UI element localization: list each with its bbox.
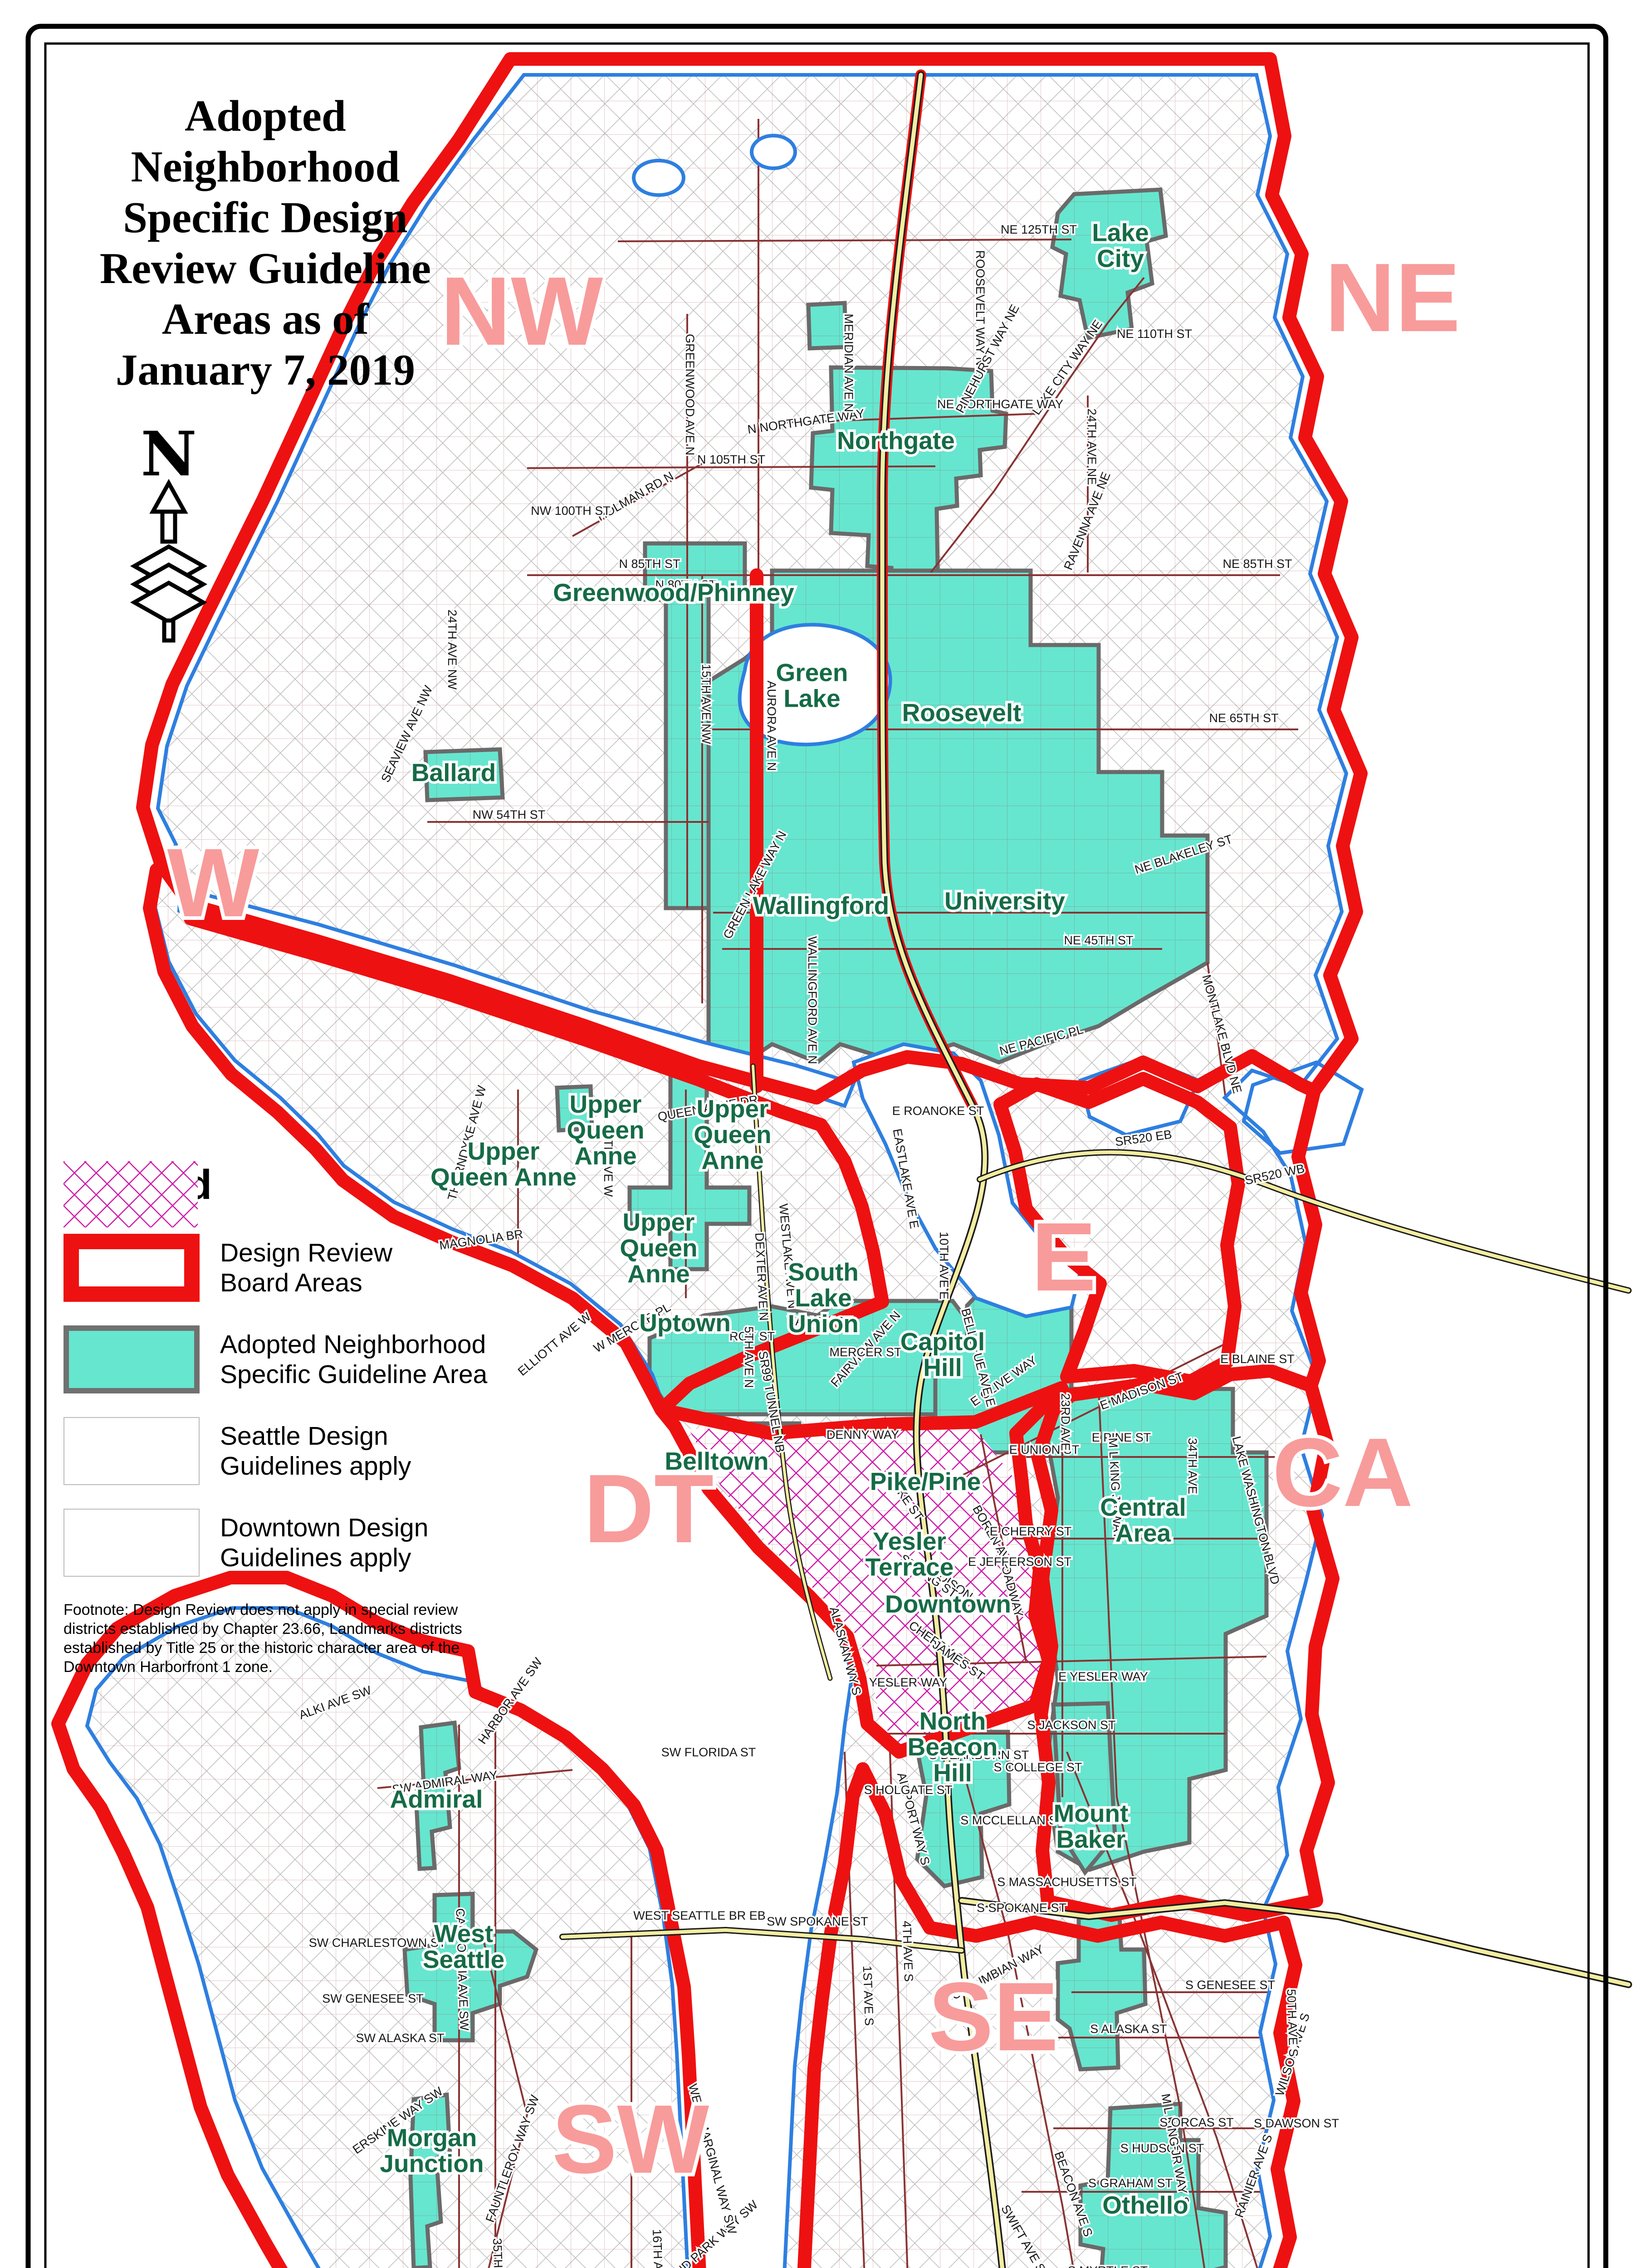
street-label: NW 54TH ST xyxy=(473,808,546,821)
street-label: NE 85TH ST xyxy=(1222,557,1292,571)
neighborhood-label: Admiral xyxy=(390,1785,483,1813)
neighborhood-label: MorganJunction xyxy=(380,2123,484,2177)
street-label: S ALASKA ST xyxy=(1090,2022,1167,2036)
legend: Legend Design Review Board Areas Adopted… xyxy=(64,1161,499,1677)
street-label: 4TH AVE S xyxy=(900,1921,916,1982)
legend-label: Seattle Design xyxy=(220,1421,411,1451)
street-label: E YESLER WAY xyxy=(1058,1670,1148,1683)
street-label: 16TH AVE SW xyxy=(650,2229,666,2268)
street-label: S MYRTLE ST xyxy=(1068,2264,1148,2268)
neighborhood-label: SouthLakeUnion xyxy=(788,1258,859,1338)
street-label: E ROANOKE ST xyxy=(892,1104,984,1118)
title-line: Review Guideline xyxy=(68,243,463,294)
street-label: E BLAINE ST xyxy=(1220,1352,1295,1366)
street-label: E JEFFERSON ST xyxy=(968,1555,1071,1569)
street-label: N 85TH ST xyxy=(619,557,680,571)
street-label: 50TH AVE S xyxy=(1284,1989,1300,2057)
neighborhood-label: Downtown xyxy=(885,1590,1011,1618)
neighborhood-label: UpperQueenAnne xyxy=(567,1090,644,1170)
title-line: Areas as of xyxy=(68,294,463,345)
street-label: MERCER ST xyxy=(829,1345,901,1359)
street-label: S MCCLELLAN ST xyxy=(960,1813,1065,1827)
street-label: S HUDSON ST xyxy=(1120,2141,1204,2155)
legend-item-downtown-guidelines: Downtown Design Guidelines apply xyxy=(64,1509,499,1577)
street-label: WALLINGFORD AVE N xyxy=(806,936,819,1064)
district-label: NW xyxy=(440,256,603,366)
legend-footnote: Footnote: Design Review does not apply i… xyxy=(64,1600,472,1677)
legend-label: Board Areas xyxy=(220,1268,392,1298)
seattle-guidelines-swatch xyxy=(64,1417,200,1485)
haller-lake xyxy=(752,136,795,168)
street-label: WEST SEATTLE BR EB xyxy=(633,1909,766,1922)
street-label: SW SPOKANE ST xyxy=(767,1915,868,1928)
street-label: S DAWSON ST xyxy=(1254,2116,1339,2130)
district-label: SE xyxy=(929,1962,1059,2071)
north-arrow xyxy=(134,483,203,640)
street-label: S MASSACHUSETTS ST xyxy=(997,1875,1137,1889)
street-label: S JACKSON ST xyxy=(1027,1718,1115,1732)
neighborhood-label: Ballard xyxy=(411,758,496,787)
legend-label: Guidelines apply xyxy=(220,1451,411,1481)
street-label: 23RD AVE xyxy=(1059,1393,1072,1451)
map-title: Adopted Neighborhood Specific Design Rev… xyxy=(68,91,463,396)
legend-item-seattle-guidelines: Seattle Design Guidelines apply xyxy=(64,1417,499,1485)
neighborhood-label: Wallingford xyxy=(753,891,889,919)
neighborhood-label: GreenLake xyxy=(776,658,848,712)
neighborhood-label: Uptown xyxy=(639,1309,731,1337)
district-label: CA xyxy=(1272,1417,1413,1527)
street-label: E CHERRY ST xyxy=(990,1525,1072,1538)
street-label: N 105TH ST xyxy=(697,453,765,466)
north-arrow-letter: N xyxy=(141,418,196,490)
street-label: S SPOKANE ST xyxy=(977,1901,1066,1915)
street-label: SW GENESEE ST xyxy=(322,1992,424,2005)
neighborhood-label: Othello xyxy=(1102,2191,1188,2219)
street-label: MERIDIAN AVE N xyxy=(842,313,856,412)
neighborhood-label: MountBaker xyxy=(1054,1799,1129,1853)
bitter-lake xyxy=(634,161,684,195)
street-label: AURORA AVE N xyxy=(765,680,778,771)
neighborhood-label: UpperQueenAnne xyxy=(620,1208,697,1288)
street-label: 10TH AVE E xyxy=(937,1232,951,1300)
legend-label: Specific Guideline Area xyxy=(220,1359,487,1389)
legend-label: Design Review xyxy=(220,1238,392,1268)
street-label: ELLIOTT AVE W xyxy=(515,1310,594,1378)
street-label: SW FLORIDA ST xyxy=(661,1745,756,1759)
street-label: S GENESEE ST xyxy=(1185,1978,1275,1992)
neighborhood-label: Northgate xyxy=(837,426,955,455)
neighborhood-label: Greenwood/Phinney xyxy=(553,578,794,606)
street-label: 24TH AVE NE xyxy=(1085,408,1099,485)
neighborhood-label: UpperQueenAnne xyxy=(694,1095,771,1174)
street-label: S COLLEGE ST xyxy=(993,1760,1082,1774)
misc-labels: N xyxy=(141,418,196,490)
street-label: YESLER WAY xyxy=(869,1676,948,1689)
legend-label: Downtown Design xyxy=(220,1513,428,1543)
district-label: W xyxy=(167,828,259,937)
title-line: January 7, 2019 xyxy=(68,345,463,396)
street-label: 34TH AVE xyxy=(1186,1438,1199,1494)
neighborhood-label: WestSeattle xyxy=(423,1919,504,1973)
legend-label: Adopted Neighborhood xyxy=(220,1330,487,1359)
street-label: E PINE ST xyxy=(1092,1431,1151,1444)
map-sheet: NE 125TH STLAKE CITY WAY NENE 110TH STNE… xyxy=(0,0,1633,2268)
board-areas-swatch xyxy=(64,1234,200,1302)
street-label: NE 110TH ST xyxy=(1117,327,1192,341)
title-line: Adopted xyxy=(68,91,463,142)
street-label: DENNY WAY xyxy=(826,1428,899,1442)
neighborhood-label: Pike/Pine xyxy=(870,1467,981,1496)
street-label: 1ST AVE S xyxy=(861,1965,876,2026)
street-label: NE 45TH ST xyxy=(1064,934,1133,947)
district-label: NE xyxy=(1325,243,1461,352)
district-label: DT xyxy=(584,1454,714,1563)
neighborhood-label: YeslerTerrace xyxy=(865,1527,954,1581)
street-label: NW 100TH ST xyxy=(531,504,611,518)
district-label: SW xyxy=(552,2084,709,2194)
title-line: Neighborhood xyxy=(68,142,463,192)
legend-item-board-areas: Design Review Board Areas xyxy=(64,1234,499,1302)
street-label: S GRAHAM ST xyxy=(1088,2176,1173,2190)
legend-item-adopted-area: Adopted Neighborhood Specific Guideline … xyxy=(64,1325,499,1393)
street-label: NE 125TH ST xyxy=(1001,223,1077,236)
street-label: S ORCAS ST xyxy=(1159,2116,1234,2129)
street-label: NE 65TH ST xyxy=(1209,711,1278,725)
street-label: 24TH AVE NW xyxy=(445,610,459,690)
title-line: Specific Design xyxy=(68,192,463,243)
legend-label: Guidelines apply xyxy=(220,1543,428,1573)
neighborhood-label: LakeCity xyxy=(1092,218,1149,272)
district-label: E xyxy=(1031,1202,1096,1311)
neighborhood-label: University xyxy=(944,887,1065,915)
street-label: 15TH AVE NW xyxy=(699,664,713,744)
street-label: SW ALASKA ST xyxy=(356,2031,444,2045)
street-label: 35TH AVE SW xyxy=(490,2238,507,2268)
neighborhood-label: Roosevelt xyxy=(902,699,1022,727)
downtown-guidelines-swatch xyxy=(64,1509,200,1577)
street-label: 5TH AVE N xyxy=(742,1326,756,1388)
adopted-area-swatch xyxy=(64,1325,200,1393)
street-label: GREENWOOD AVE N xyxy=(683,334,697,455)
